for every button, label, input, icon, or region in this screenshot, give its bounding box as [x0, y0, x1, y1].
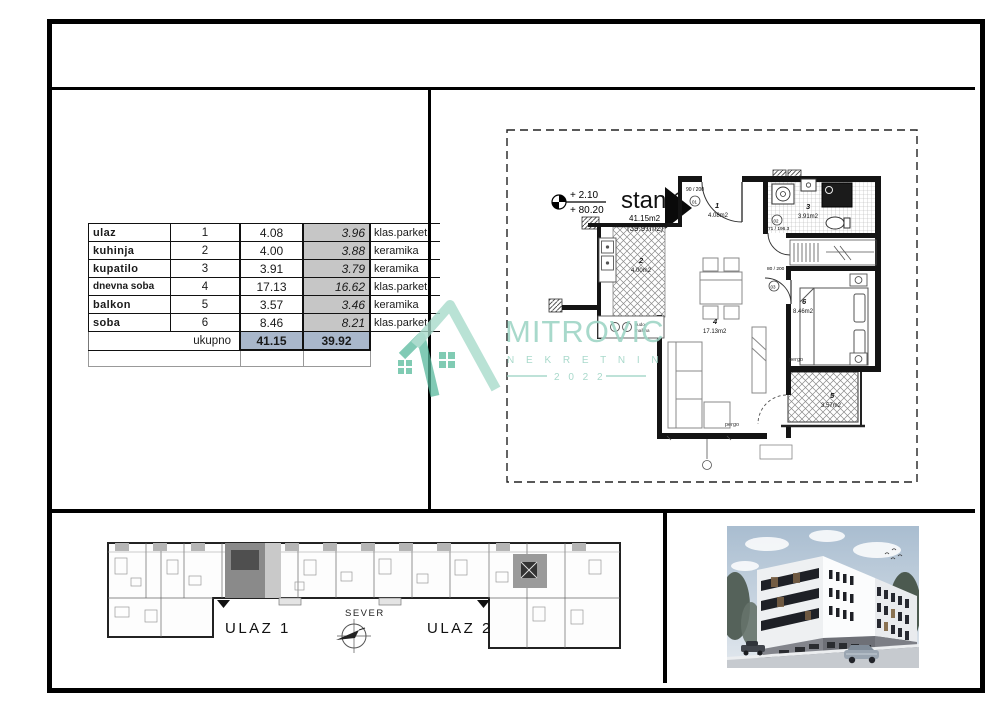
- room-number: 4: [171, 278, 241, 296]
- wall-column: [549, 299, 562, 312]
- sofa: [668, 342, 730, 428]
- elevation-marker: + 2.10 + 80.20: [552, 190, 606, 216]
- table-row: kupatilo 3 3.91 3.79 keramika: [89, 260, 441, 278]
- room-net-area: 3.46: [303, 296, 370, 314]
- pergola-label-1: pergo: [789, 357, 803, 363]
- entrance-canopies: [217, 598, 490, 608]
- total-label: ukupno: [89, 332, 241, 351]
- table-row: balkon 5 3.57 3.46 keramika: [89, 296, 441, 314]
- room-1-num: 1: [715, 201, 719, 210]
- north-label: SEVER: [345, 608, 385, 619]
- room-gross-area: 4.08: [240, 224, 303, 242]
- building-photo: [727, 526, 919, 668]
- table-row: ulaz 1 4.08 3.96 klas.parket: [89, 224, 441, 242]
- entry-door-dim: 90 / 200: [686, 187, 704, 193]
- balcony-door: [758, 395, 786, 424]
- compass-icon: [336, 619, 371, 653]
- table-row: dnevna soba 4 17.13 16.62 klas.parket: [89, 278, 441, 296]
- total-net-area: 39.92: [303, 332, 370, 351]
- total-gross-area: 41.15: [240, 332, 303, 351]
- room-name: dnevna soba: [89, 278, 171, 296]
- room-number: 3: [171, 260, 241, 278]
- elevation-top-value: + 2.10: [570, 190, 599, 201]
- room-4-num: 4: [712, 317, 718, 326]
- room-4-area: 17.13m2: [703, 329, 727, 335]
- elevation-bottom-value: + 80.20: [570, 205, 604, 216]
- room-2-num: 2: [638, 256, 644, 265]
- room-net-area: 3.88: [303, 242, 370, 260]
- room-1-area: 4.08m2: [708, 213, 729, 219]
- room-3-area: 3.91m2: [798, 214, 819, 220]
- table-row: soba 6 8.46 8.21 klas.parket: [89, 314, 441, 332]
- pergola-label-2: pergo: [725, 422, 739, 428]
- dimension-marks: [667, 436, 792, 470]
- entry-door-tag: 01: [692, 200, 698, 205]
- table-row: kuhinja 2 4.00 3.88 keramika: [89, 242, 441, 260]
- divider-middle-vertical: [428, 87, 431, 511]
- room-net-area: 8.21: [303, 314, 370, 332]
- room-number: 2: [171, 242, 241, 260]
- bathroom-door-tag: 02: [774, 219, 780, 224]
- room-name: balkon: [89, 296, 171, 314]
- dining-set: [700, 258, 742, 319]
- apartment-floor-plan: + 2.10 + 80.20 stan 1 41.15m2 (39.91m2): [431, 90, 985, 511]
- kitchen-note-2: mašina: [635, 328, 650, 333]
- room-5-area: 3.57m2: [821, 403, 842, 409]
- room-gross-area: 4.00: [240, 242, 303, 260]
- room-name: kupatilo: [89, 260, 171, 278]
- room-name: soba: [89, 314, 171, 332]
- bedroom-door: [765, 278, 791, 304]
- room-2-area: 4.00m2: [631, 268, 652, 274]
- unit-area-gross: 41.15m2: [629, 214, 661, 223]
- room-number: 6: [171, 314, 241, 332]
- table-total-row: ukupno 41.15 39.92: [89, 332, 441, 351]
- wardrobe: [790, 240, 876, 265]
- room-gross-area: 8.46: [240, 314, 303, 332]
- room-number: 5: [171, 296, 241, 314]
- building-site-plan: ULAZ 1 ULAZ 2 SEVER: [49, 512, 665, 684]
- room-net-area: 3.79: [303, 260, 370, 278]
- room-gross-area: 3.91: [240, 260, 303, 278]
- room-net-area: 16.62: [303, 278, 370, 296]
- balcony-tile-floor: [788, 372, 858, 422]
- room-number: 1: [171, 224, 241, 242]
- room-name: kuhinja: [89, 242, 171, 260]
- room-gross-area: 17.13: [240, 278, 303, 296]
- entrance-1-label: ULAZ 1: [225, 620, 291, 637]
- room-name: ulaz: [89, 224, 171, 242]
- tv-cabinet: [752, 327, 766, 393]
- room-gross-area: 3.57: [240, 296, 303, 314]
- room-net-area: 3.96: [303, 224, 370, 242]
- real-estate-sheet: ulaz 1 4.08 3.96 klas.parket kuhinja 2 4…: [0, 0, 1000, 706]
- kitchen-note-1: sudo-: [635, 322, 647, 327]
- table-empty-row: [89, 350, 441, 367]
- bathroom-door-dim: 71 / 196.3: [768, 226, 790, 232]
- room-area-table: ulaz 1 4.08 3.96 klas.parket kuhinja 2 4…: [88, 223, 440, 367]
- entrance-2-label: ULAZ 2: [427, 620, 493, 637]
- room-6-area: 8.46m2: [793, 309, 814, 315]
- bedroom-door-tag: 03: [771, 285, 777, 290]
- bedroom-door-dim: 80 / 200: [767, 266, 785, 272]
